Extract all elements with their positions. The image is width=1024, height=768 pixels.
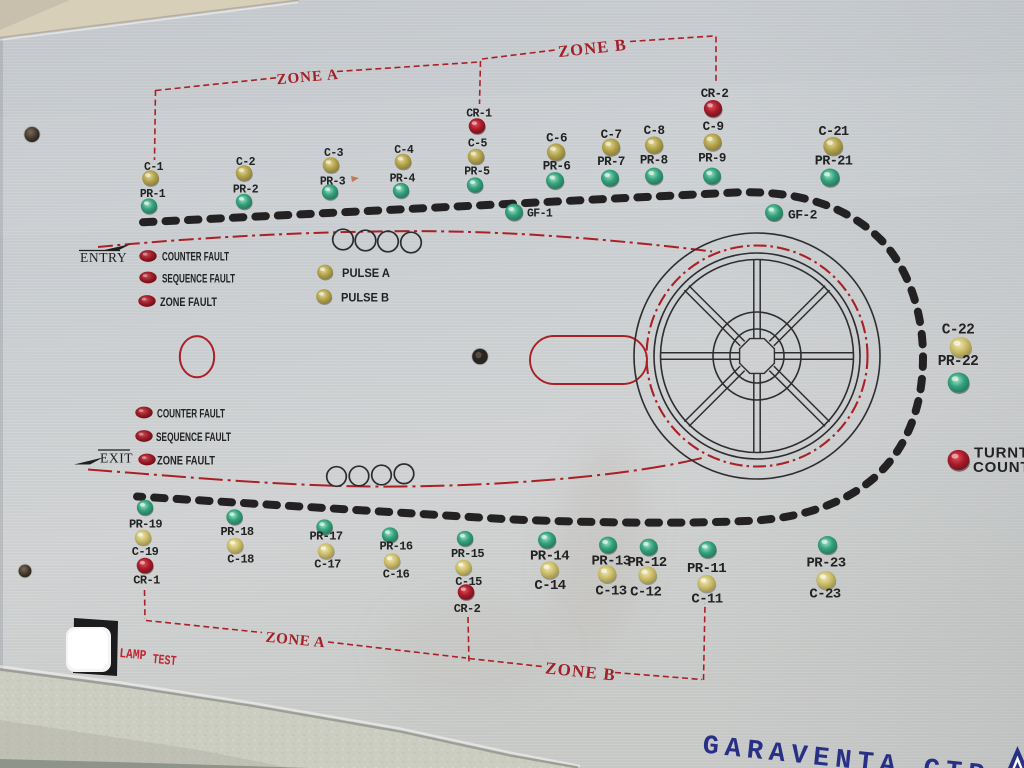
svg-text:PR-19: PR-19 (129, 518, 162, 532)
svg-text:PR-17: PR-17 (309, 530, 342, 544)
svg-text:GF-2: GF-2 (788, 208, 818, 223)
svg-text:COUNTER FAULT: COUNTER FAULT (157, 407, 225, 421)
svg-text:CR-1: CR-1 (466, 108, 492, 121)
svg-text:PR-11: PR-11 (687, 561, 726, 577)
svg-text:C-12: C-12 (630, 585, 661, 601)
svg-text:PR-1: PR-1 (140, 188, 166, 201)
svg-text:PR-8: PR-8 (640, 154, 668, 168)
svg-text:C-8: C-8 (644, 124, 665, 138)
svg-text:C-9: C-9 (703, 120, 724, 134)
svg-text:C-18: C-18 (227, 553, 254, 567)
svg-text:PR-21: PR-21 (815, 155, 853, 170)
svg-text:COUNTER FAULT: COUNTER FAULT (162, 250, 229, 264)
svg-text:COUNTER: COUNTER (973, 459, 1024, 476)
svg-text:PR-9: PR-9 (698, 152, 726, 166)
svg-text:C-16: C-16 (383, 568, 410, 582)
svg-text:PR-18: PR-18 (220, 525, 253, 539)
svg-text:PR-15: PR-15 (451, 547, 484, 561)
svg-text:CR-2: CR-2 (701, 87, 729, 101)
svg-text:SEQUENCE FAULT: SEQUENCE FAULT (156, 430, 231, 444)
svg-text:EXIT: EXIT (100, 451, 133, 466)
svg-text:PR-23: PR-23 (806, 556, 845, 572)
svg-text:C-13: C-13 (595, 584, 626, 600)
svg-text:PR-5: PR-5 (464, 166, 490, 179)
svg-text:TEST: TEST (152, 653, 177, 670)
svg-text:C-23: C-23 (809, 587, 840, 603)
svg-text:C-17: C-17 (314, 558, 341, 572)
svg-text:CR-1: CR-1 (133, 574, 160, 588)
svg-text:PR-22: PR-22 (938, 354, 979, 370)
svg-text:PR-7: PR-7 (597, 155, 625, 169)
svg-text:LAMP: LAMP (119, 647, 147, 664)
svg-text:PR-16: PR-16 (379, 540, 412, 554)
svg-text:ZONE FAULT: ZONE FAULT (157, 454, 216, 468)
svg-text:PULSE B: PULSE B (341, 291, 389, 305)
svg-text:SEQUENCE FAULT: SEQUENCE FAULT (162, 272, 235, 286)
svg-text:ENTRY: ENTRY (80, 250, 127, 265)
svg-text:C-22: C-22 (942, 323, 974, 339)
svg-text:C-6: C-6 (546, 132, 567, 146)
svg-text:C-11: C-11 (691, 592, 722, 608)
svg-text:C-14: C-14 (534, 578, 565, 594)
svg-text:C-5: C-5 (468, 138, 488, 151)
svg-text:ZONE FAULT: ZONE FAULT (160, 295, 218, 309)
svg-text:C-19: C-19 (132, 545, 159, 559)
svg-text:GF-1: GF-1 (527, 208, 553, 221)
svg-text:CR-2: CR-2 (454, 602, 481, 616)
svg-text:PR-6: PR-6 (543, 160, 571, 174)
svg-text:PULSE A: PULSE A (342, 266, 390, 280)
